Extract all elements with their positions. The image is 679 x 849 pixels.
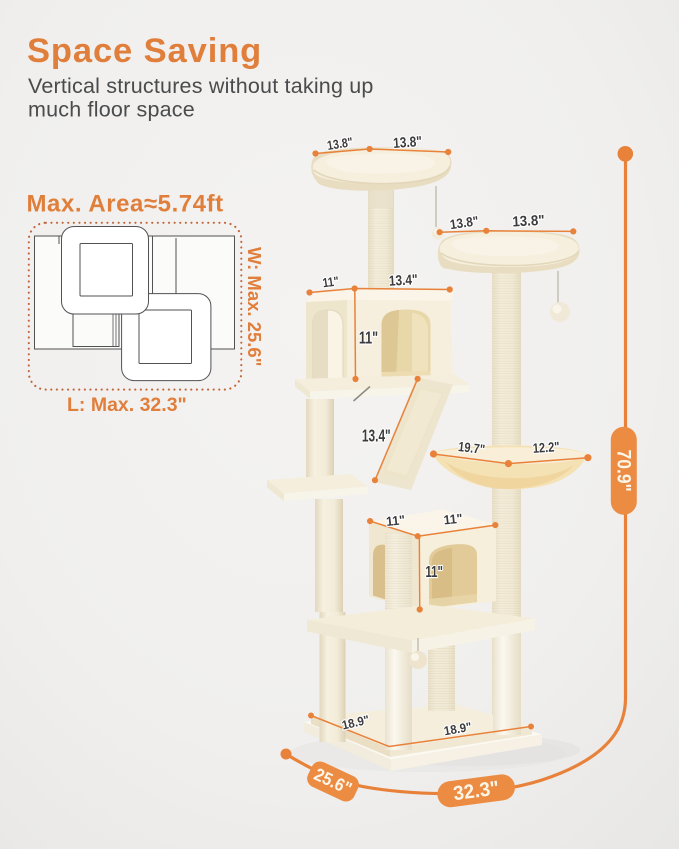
svg-text:11": 11" bbox=[385, 513, 405, 529]
svg-text:Max. Area≈5.74ft: Max. Area≈5.74ft bbox=[27, 191, 224, 218]
svg-text:12.2": 12.2" bbox=[532, 439, 560, 456]
svg-text:11": 11" bbox=[322, 273, 340, 290]
svg-text:Space Saving: Space Saving bbox=[27, 32, 262, 70]
svg-text:11": 11" bbox=[359, 329, 378, 349]
svg-text:19.7": 19.7" bbox=[457, 439, 486, 457]
svg-text:L: Max. 32.3": L: Max. 32.3" bbox=[67, 394, 187, 416]
svg-text:11": 11" bbox=[443, 511, 463, 527]
svg-text:13.8": 13.8" bbox=[512, 211, 545, 229]
svg-text:13.4": 13.4" bbox=[388, 271, 418, 289]
svg-text:13.4": 13.4" bbox=[362, 426, 391, 446]
svg-text:13.8": 13.8" bbox=[393, 133, 423, 151]
svg-text:11": 11" bbox=[425, 562, 443, 580]
svg-text:Vertical structures without ta: Vertical structures without taking up bbox=[28, 74, 374, 98]
svg-text:W: Max. 25.6": W: Max. 25.6" bbox=[244, 247, 265, 366]
svg-text:70.9": 70.9" bbox=[613, 450, 635, 492]
svg-text:much floor space: much floor space bbox=[28, 98, 195, 122]
